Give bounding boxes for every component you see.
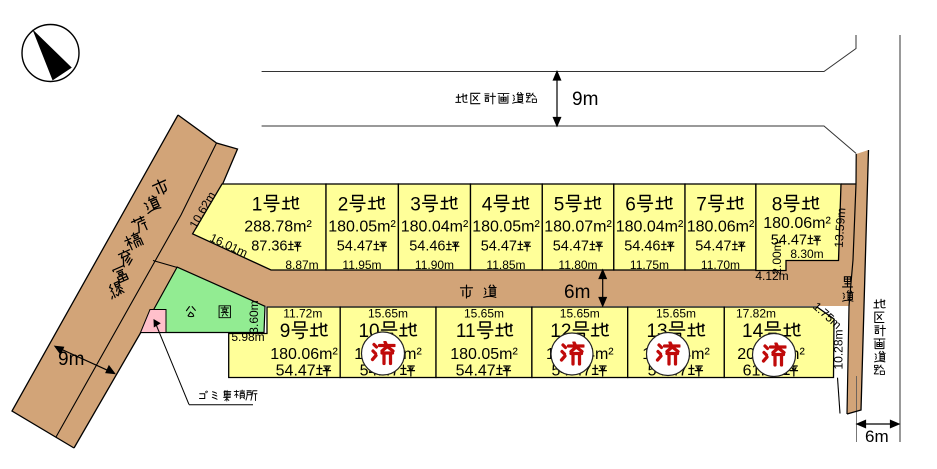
svg-text:180.05m²: 180.05m² (472, 219, 540, 236)
svg-text:15.65m: 15.65m (368, 307, 408, 321)
svg-text:5: 5 (554, 195, 565, 216)
svg-text:15.65m: 15.65m (560, 307, 600, 321)
svg-text:9: 9 (280, 321, 291, 342)
svg-text:13.59m: 13.59m (832, 207, 849, 248)
svg-text:8: 8 (772, 195, 783, 216)
svg-text:11.80m: 11.80m (558, 258, 597, 272)
svg-text:54.47: 54.47 (481, 239, 517, 255)
svg-text:11.72m: 11.72m (283, 307, 322, 321)
svg-text:180.04m²: 180.04m² (401, 219, 469, 236)
svg-text:180.05m²: 180.05m² (450, 346, 518, 363)
svg-text:4.12m: 4.12m (755, 269, 788, 283)
svg-text:54.47: 54.47 (337, 239, 373, 255)
svg-text:6m: 6m (865, 427, 889, 446)
svg-text:54.47: 54.47 (276, 363, 316, 380)
svg-text:3.60m: 3.60m (247, 300, 261, 333)
svg-text:6m: 6m (564, 282, 590, 303)
svg-text:6: 6 (625, 195, 636, 216)
svg-text:2: 2 (338, 195, 349, 216)
svg-text:54.46: 54.46 (409, 239, 445, 255)
svg-text:54.47: 54.47 (695, 239, 731, 255)
svg-text:180.05m²: 180.05m² (328, 219, 396, 236)
svg-text:17.82m: 17.82m (736, 307, 776, 321)
svg-text:9m: 9m (58, 349, 84, 370)
svg-text:54.47: 54.47 (553, 239, 589, 255)
svg-text:7: 7 (696, 195, 707, 216)
svg-text:288.78m²: 288.78m² (244, 219, 312, 236)
svg-text:8.87m: 8.87m (285, 258, 318, 272)
svg-text:180.06m²: 180.06m² (763, 215, 831, 232)
svg-text:11.75m: 11.75m (630, 258, 669, 272)
svg-text:11.70m: 11.70m (701, 258, 740, 272)
svg-text:180.04m²: 180.04m² (616, 219, 684, 236)
svg-text:54.47: 54.47 (456, 363, 496, 380)
svg-text:87.36: 87.36 (251, 239, 287, 255)
svg-text:3: 3 (410, 195, 421, 216)
svg-text:54.46: 54.46 (624, 239, 660, 255)
svg-text:11.85m: 11.85m (486, 258, 525, 272)
svg-text:10.28m: 10.28m (832, 329, 846, 369)
svg-text:11.95m: 11.95m (342, 258, 381, 272)
svg-text:9m: 9m (572, 89, 598, 110)
svg-text:1: 1 (252, 195, 263, 216)
svg-text:15.65m: 15.65m (464, 307, 504, 321)
svg-text:180.06m²: 180.06m² (687, 219, 755, 236)
svg-text:4: 4 (482, 195, 493, 216)
svg-text:180.06m²: 180.06m² (270, 346, 338, 363)
svg-text:15.65m: 15.65m (656, 307, 696, 321)
svg-text:11.90m: 11.90m (415, 258, 454, 272)
svg-text:11: 11 (456, 321, 476, 342)
svg-text:180.07m²: 180.07m² (544, 219, 612, 236)
svg-text:8.30m: 8.30m (790, 247, 823, 261)
